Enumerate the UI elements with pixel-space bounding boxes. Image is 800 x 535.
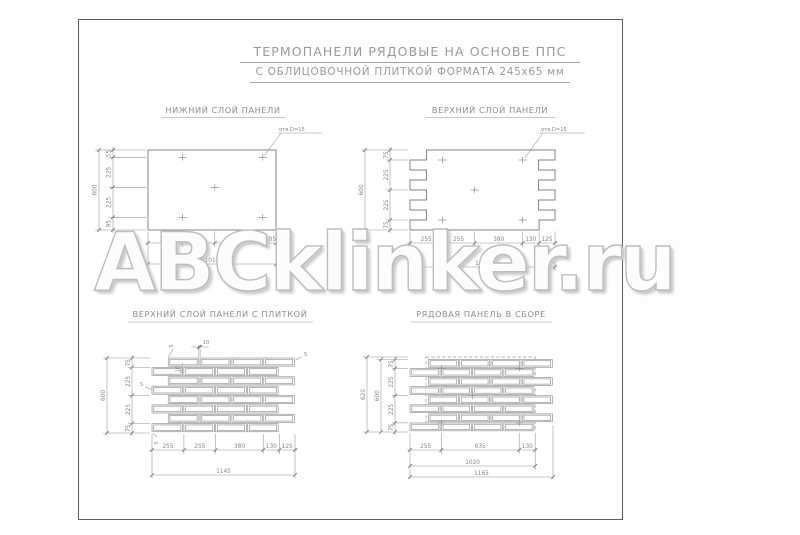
svg-text:225: 225 <box>107 166 113 177</box>
joint-dim-top: 10 <box>203 340 210 346</box>
sheet-title-line2: С ОБЛИЦОВОЧНОЙ ПЛИТКОЙ ФОРМАТА 245х65 мм <box>250 66 570 83</box>
gap-dim: 5 <box>304 352 307 358</box>
drawing-bottom-layer: НИЖНИЙ СЛОЙ ПАНЕЛИ 55 225 225 <box>85 103 330 293</box>
drawing-title: РЯДОВАЯ ПАНЕЛЬ В СБОРЕ <box>416 309 546 319</box>
svg-text:75: 75 <box>384 221 390 229</box>
hole-callout: отв.D=15 <box>541 127 567 133</box>
svg-text:255: 255 <box>421 237 432 243</box>
svg-text:75: 75 <box>126 424 132 432</box>
hole-callout: отв.D=15 <box>279 127 305 133</box>
svg-text:600: 600 <box>359 184 365 195</box>
svg-text:75: 75 <box>384 151 390 159</box>
svg-text:225: 225 <box>389 403 395 414</box>
brick-pattern <box>152 358 294 432</box>
drawing-top-layer: ВЕРХНИЙ СЛОЙ ПАНЕЛИ 75 225 2 <box>340 103 595 293</box>
svg-text:75: 75 <box>389 424 395 432</box>
sheet-title: ТЕРМОПАНЕЛИ РЯДОВЫЕ НА ОСНОВЕ ППС С ОБЛИ… <box>240 44 580 83</box>
brick-pattern <box>410 359 552 430</box>
svg-text:125: 125 <box>541 237 552 243</box>
svg-text:600: 600 <box>101 390 107 401</box>
dimension-ticks <box>97 148 278 266</box>
drawing-top-layer-tiled: ВЕРХНИЙ СЛОЙ ПАНЕЛИ С ПЛИТКОЙ <box>85 305 345 510</box>
svg-text:620: 620 <box>361 389 367 400</box>
svg-text:600: 600 <box>93 184 99 195</box>
svg-text:225: 225 <box>384 169 390 180</box>
svg-text:1145: 1145 <box>216 469 231 475</box>
svg-text:125: 125 <box>282 444 293 450</box>
svg-text:225: 225 <box>107 196 113 207</box>
svg-text:380: 380 <box>493 237 504 243</box>
svg-text:255: 255 <box>420 444 431 450</box>
svg-text:75: 75 <box>389 360 395 368</box>
svg-text:635: 635 <box>475 444 486 450</box>
svg-text:1015: 1015 <box>205 258 220 264</box>
svg-text:600: 600 <box>375 390 381 401</box>
svg-text:380: 380 <box>233 237 244 243</box>
drawing-title: НИЖНИЙ СЛОЙ ПАНЕЛИ <box>165 104 280 115</box>
svg-text:75: 75 <box>126 359 132 367</box>
svg-text:255: 255 <box>162 444 173 450</box>
svg-text:130: 130 <box>266 444 277 450</box>
svg-text:255: 255 <box>193 237 204 243</box>
svg-text:275: 275 <box>160 237 171 243</box>
gap-dim: 5 <box>154 441 160 444</box>
svg-text:225: 225 <box>126 376 132 387</box>
svg-text:255: 255 <box>453 237 464 243</box>
svg-text:55: 55 <box>107 150 113 158</box>
svg-text:1020: 1020 <box>465 460 480 466</box>
drawing-assembled-panel: РЯДОВАЯ ПАНЕЛЬ В СБОРЕ 75 225 <box>350 305 610 510</box>
svg-text:225: 225 <box>389 376 395 387</box>
svg-text:1165: 1165 <box>474 471 489 477</box>
svg-text:130: 130 <box>525 237 536 243</box>
svg-text:130: 130 <box>522 444 533 450</box>
drawing-title: ВЕРХНИЙ СЛОЙ ПАНЕЛИ С ПЛИТКОЙ <box>133 308 308 319</box>
dimension-text: 55 225 225 95 600 275 255 380 105 1015 о… <box>93 127 305 264</box>
svg-text:225: 225 <box>126 404 132 415</box>
panel-outline <box>148 150 276 230</box>
svg-text:255: 255 <box>194 444 205 450</box>
sheet-title-line1: ТЕРМОПАНЕЛИ РЯДОВЫЕ НА ОСНОВЕ ППС <box>240 44 580 63</box>
hole-crosses <box>179 154 268 220</box>
svg-text:1145: 1145 <box>475 261 490 267</box>
hole-crosses <box>438 157 527 223</box>
drawing-title: ВЕРХНИЙ СЛОЙ ПАНЕЛИ <box>432 104 548 115</box>
joint-dim-vert: 10 <box>176 366 182 373</box>
dimension-lines <box>95 133 322 268</box>
dimension-lines <box>361 133 585 271</box>
svg-text:95: 95 <box>107 220 113 228</box>
dimension-ticks <box>363 148 557 269</box>
panel-outline-castellated <box>410 150 555 230</box>
scanned-drawing-sheet: ТЕРМОПАНЕЛИ РЯДОВЫЕ НА ОСНОВЕ ППС С ОБЛИ… <box>0 0 800 535</box>
svg-text:105: 105 <box>265 237 276 243</box>
svg-text:380: 380 <box>234 444 245 450</box>
svg-text:225: 225 <box>384 199 390 210</box>
gap-dim: 5 <box>169 344 175 347</box>
gap-dim: 5 <box>140 382 143 388</box>
